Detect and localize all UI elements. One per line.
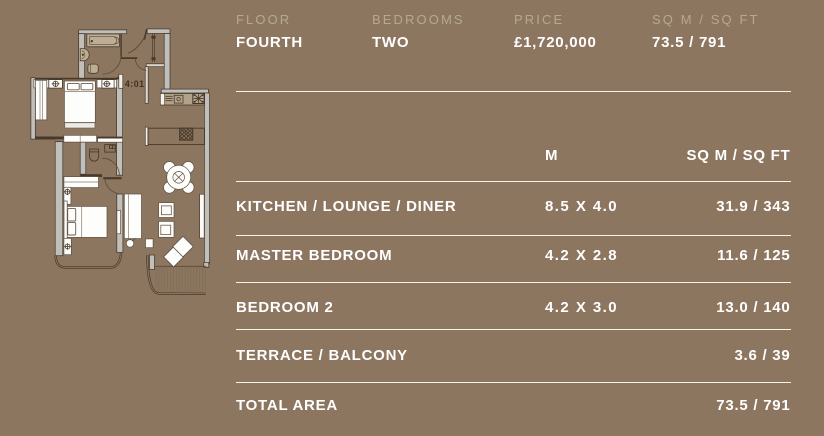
svg-text:4:01: 4:01 <box>125 79 145 89</box>
